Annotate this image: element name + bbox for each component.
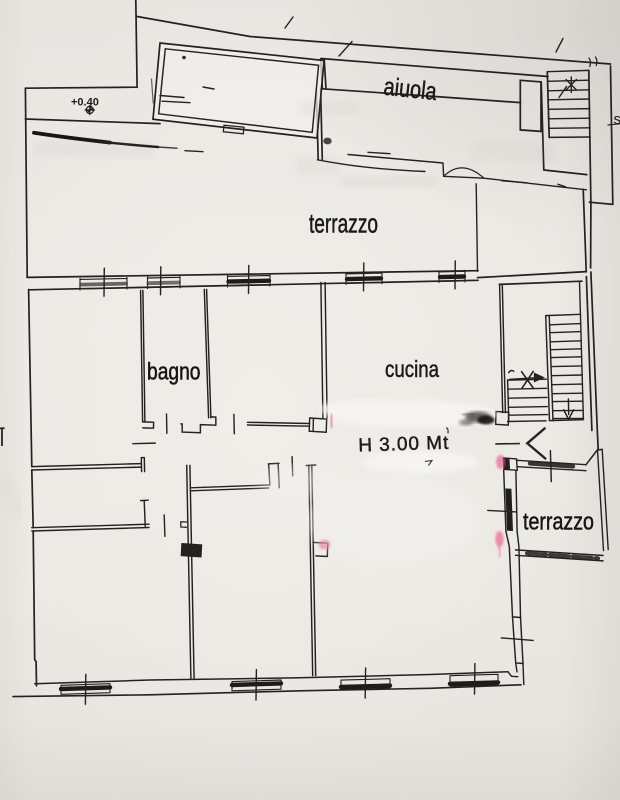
svg-text:H 3.00 Mt: H 3.00 Mt <box>358 433 449 457</box>
svg-text:s: s <box>614 111 620 128</box>
svg-text:terrazzo: terrazzo <box>523 509 594 536</box>
svg-text:aiuola: aiuola <box>382 73 438 106</box>
svg-text:terrazzo: terrazzo <box>309 209 378 239</box>
svg-text:+0.40: +0.40 <box>71 97 99 109</box>
svg-text:bagno: bagno <box>147 359 201 386</box>
svg-text:cucina: cucina <box>385 356 439 382</box>
